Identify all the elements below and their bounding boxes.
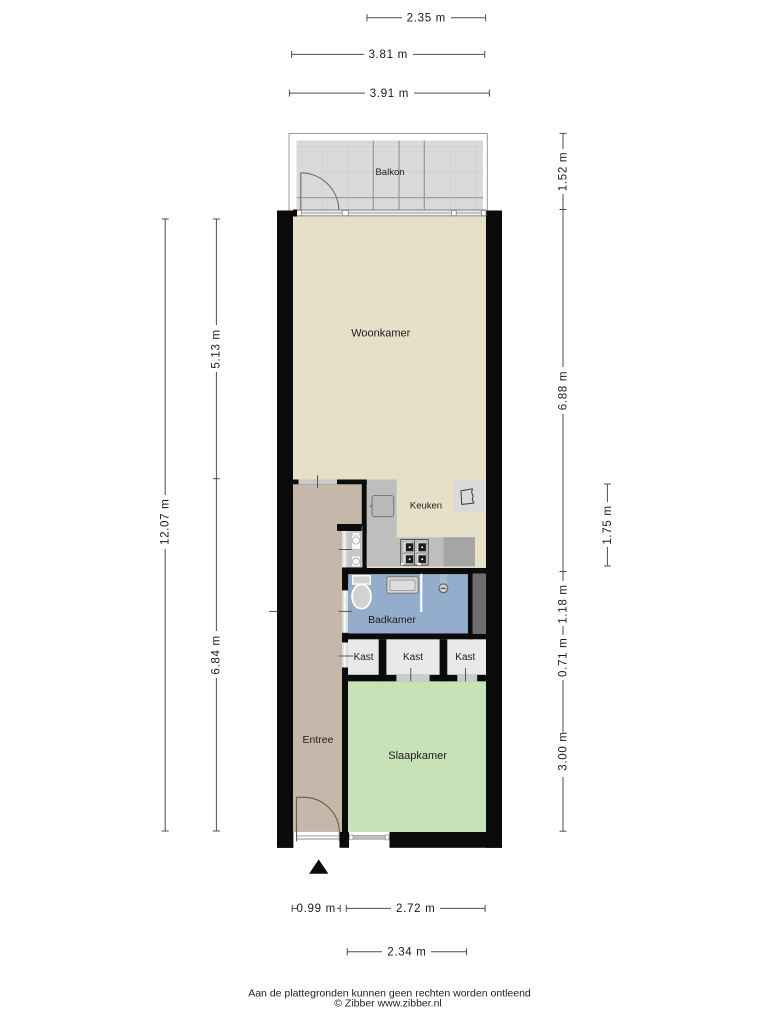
svg-text:6.84 m: 6.84 m	[210, 635, 222, 674]
svg-text:© Zibber www.zibber.nl: © Zibber www.zibber.nl	[334, 998, 442, 1010]
svg-text:Keuken: Keuken	[410, 501, 442, 512]
svg-text:12.07 m: 12.07 m	[159, 499, 171, 545]
svg-text:1.18 m: 1.18 m	[558, 584, 570, 623]
svg-text:1.75 m: 1.75 m	[602, 505, 614, 544]
svg-text:2.72 m: 2.72 m	[396, 903, 435, 915]
svg-text:Slaapkamer: Slaapkamer	[388, 750, 447, 762]
svg-text:0.71 m: 0.71 m	[558, 638, 570, 677]
svg-text:0.99 m: 0.99 m	[297, 903, 336, 915]
svg-text:3.91 m: 3.91 m	[370, 88, 409, 100]
svg-text:2.34 m: 2.34 m	[387, 947, 426, 959]
svg-text:1.52 m: 1.52 m	[558, 152, 570, 191]
svg-text:Badkamer: Badkamer	[368, 614, 416, 626]
svg-text:3.81 m: 3.81 m	[369, 49, 408, 61]
svg-text:3.00 m: 3.00 m	[558, 731, 570, 770]
svg-text:2.35 m: 2.35 m	[407, 13, 446, 25]
svg-text:Balkon: Balkon	[375, 167, 404, 178]
svg-text:Entree: Entree	[303, 734, 334, 746]
svg-text:5.13 m: 5.13 m	[211, 329, 223, 368]
svg-text:Kast: Kast	[354, 652, 374, 663]
svg-text:Woonkamer: Woonkamer	[351, 328, 410, 340]
svg-text:Kast: Kast	[403, 652, 423, 663]
svg-text:Kast: Kast	[455, 652, 475, 663]
svg-text:6.88 m: 6.88 m	[558, 371, 570, 410]
